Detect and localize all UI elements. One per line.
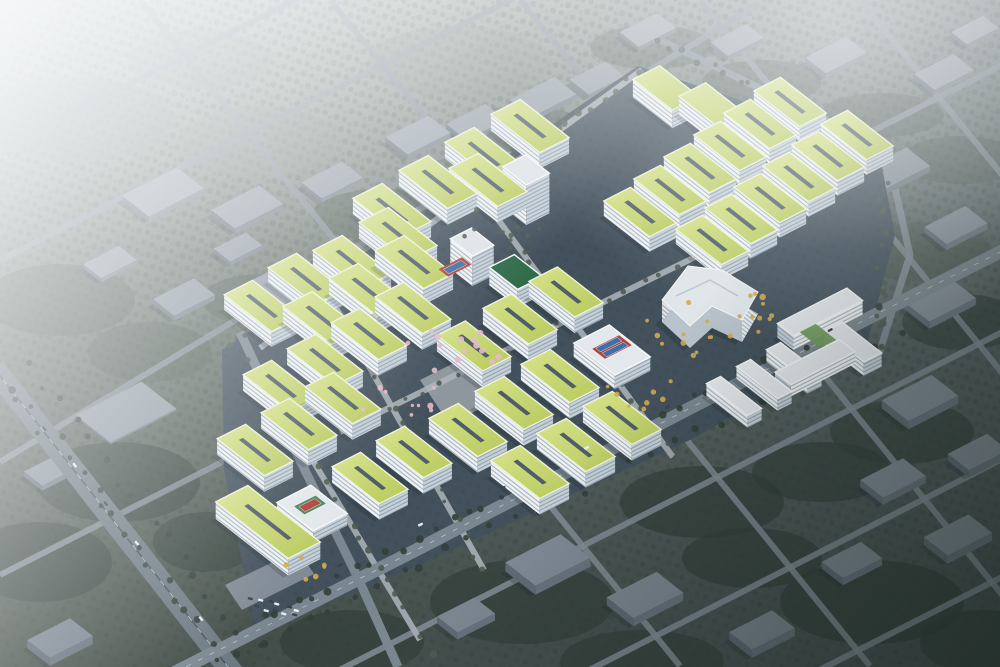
atmosphere-layer — [0, 0, 1000, 667]
aerial-render: Aerial bird's-eye architectural renderin… — [0, 0, 1000, 667]
fog-overlay — [0, 0, 1000, 667]
rendering-canvas — [0, 0, 1000, 667]
